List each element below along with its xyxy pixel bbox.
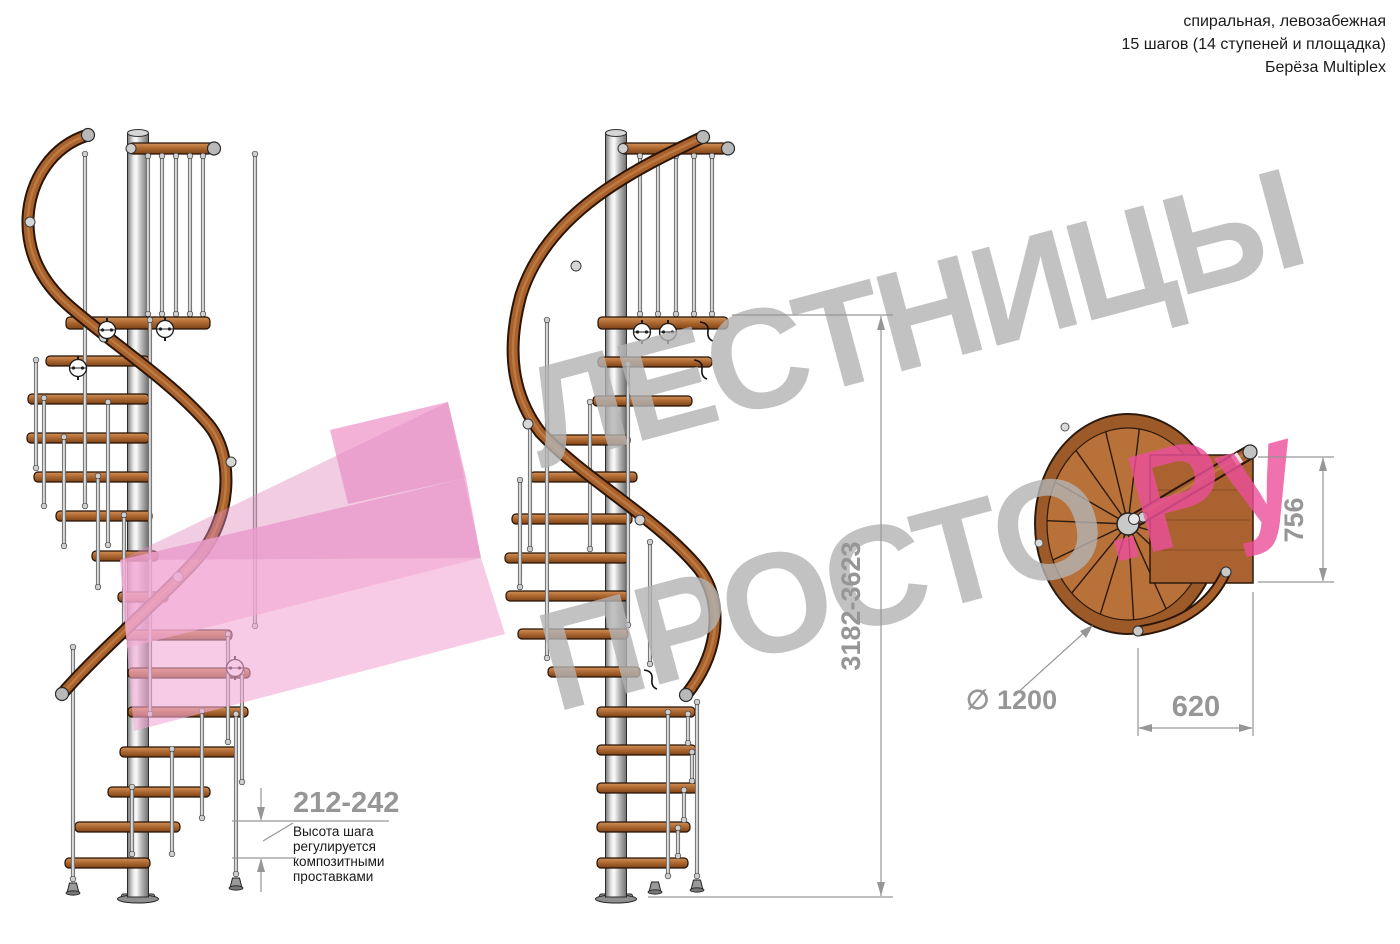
dim-step-height: 212-242 Высота шага регулируется компози…: [232, 787, 399, 892]
baluster: [518, 478, 522, 589]
fitting-dot: [72, 366, 75, 369]
landing-rail-joint: [126, 144, 136, 154]
dim-total-height-label: 3182-3623: [836, 541, 866, 670]
title-line-steps: 15 шагов (14 ступеней и площадка): [1122, 33, 1387, 56]
baluster-knob: [145, 311, 151, 317]
baluster: [695, 700, 699, 878]
handrail-sleeve: [226, 457, 236, 467]
baluster-knob: [694, 873, 700, 879]
baluster-knob: [689, 749, 695, 755]
baluster-knob: [675, 825, 681, 831]
landing-rail-cap: [722, 142, 735, 155]
arc-cap: [1133, 626, 1143, 636]
baluster-knob: [681, 817, 687, 823]
watermark-text: ЛЕСТНИЦЫ ПРОСТО.Ру: [508, 138, 1318, 742]
handrail-sleeve: [571, 261, 581, 271]
baluster: [666, 710, 670, 878]
tread: [505, 553, 628, 563]
handrail-sleeve: [25, 217, 35, 227]
baluster-knob: [587, 546, 593, 552]
arrowhead: [1080, 625, 1093, 638]
baluster: [528, 420, 532, 551]
baluster-knob: [681, 787, 687, 793]
baluster-knob: [33, 357, 39, 363]
handrail-end-cap: [82, 129, 95, 142]
step-note-line: регулируется: [293, 839, 376, 854]
baluster-knob: [169, 851, 175, 857]
baluster-knob: [527, 546, 533, 552]
title-line-material: Берёза Multiplex: [1122, 56, 1387, 79]
drawing-canvas: ЛЕСТНИЦЫ ПРОСТО.Ру 3182-3623 212-242: [0, 0, 1400, 944]
logo-facet: [120, 402, 481, 560]
baluster-knob: [647, 539, 653, 545]
tread: [65, 858, 150, 868]
baluster-knob: [200, 153, 206, 159]
baluster: [234, 712, 238, 876]
foot-plate: [229, 886, 243, 890]
baluster-knob: [233, 711, 239, 717]
baluster-knob: [665, 873, 671, 879]
baluster-knob: [121, 512, 127, 518]
baluster-knob: [159, 153, 165, 159]
watermark-logo-mark: [120, 402, 505, 731]
handrail-end-cap: [697, 131, 710, 144]
baluster-knob: [105, 399, 111, 405]
arrowhead: [1319, 457, 1327, 471]
tread: [597, 858, 688, 868]
leader-line: [263, 823, 293, 841]
baluster-knob: [187, 311, 193, 317]
dim-diameter-label: ∅ 1200: [966, 685, 1057, 715]
title-line-type: спиральная, левозабежная: [1122, 10, 1387, 33]
tread: [34, 472, 150, 482]
baluster: [674, 154, 678, 316]
baluster: [201, 154, 205, 316]
baluster-knob: [239, 779, 245, 785]
baluster-knob: [173, 153, 179, 159]
foot-plate: [690, 888, 704, 892]
tread: [120, 747, 237, 757]
baluster: [174, 154, 178, 316]
baluster-knob: [41, 503, 47, 509]
baluster: [130, 785, 134, 856]
title-block: спиральная, левозабежная 15 шагов (14 ст…: [1122, 10, 1387, 79]
baluster-knob: [233, 871, 239, 877]
baluster-knob: [82, 503, 88, 509]
plan-baluster-top: [1061, 423, 1069, 431]
arrowhead: [1319, 568, 1327, 582]
baluster-knob: [129, 851, 135, 857]
baluster-knob: [145, 153, 151, 159]
baluster-knob: [61, 543, 67, 549]
baluster-knob: [95, 473, 101, 479]
baluster-knob: [70, 644, 76, 650]
baluster-knob: [147, 317, 153, 323]
baluster-knob: [129, 784, 135, 790]
tread: [75, 822, 180, 832]
baluster-knob: [173, 311, 179, 317]
fitting-dot: [101, 328, 104, 331]
baluster-knob: [685, 740, 691, 746]
baluster-knob: [517, 477, 523, 483]
baluster-knob: [70, 876, 76, 882]
baluster: [170, 747, 174, 856]
baluster-knob: [169, 746, 175, 752]
handrail-sleeve: [635, 515, 645, 525]
baluster: [656, 154, 660, 316]
pole-top-cap: [606, 130, 627, 137]
baluster: [200, 709, 204, 820]
baluster-knob: [61, 434, 67, 440]
baluster: [83, 152, 87, 508]
dim-landing-width-label: 620: [1172, 691, 1220, 723]
baluster: [160, 154, 164, 316]
arrowhead: [1239, 724, 1253, 732]
middle-elevation-view: [505, 130, 735, 904]
foot-plate: [648, 890, 662, 894]
arrowhead: [257, 807, 265, 821]
baluster: [42, 396, 46, 508]
baluster-knob: [159, 311, 165, 317]
dim-landing-depth-label: 756: [1279, 497, 1309, 542]
baluster: [146, 154, 150, 316]
landing-rail: [128, 143, 214, 154]
landing-rail-joint: [618, 144, 628, 154]
baluster-knob: [689, 778, 695, 784]
baluster-knob: [95, 584, 101, 590]
step-note-line: проставками: [293, 869, 373, 884]
fitting-dot: [110, 328, 113, 331]
baluster-knob: [82, 151, 88, 157]
baluster-knob: [691, 153, 697, 159]
baluster-knob: [187, 153, 193, 159]
baluster-knob: [252, 151, 258, 157]
pole-top-cap: [128, 130, 149, 137]
landing-rail-cap: [208, 142, 221, 155]
baluster: [692, 154, 696, 316]
baluster-knob: [685, 711, 691, 717]
arrowhead: [257, 858, 265, 872]
baluster-knob: [225, 739, 231, 745]
baluster: [34, 358, 38, 470]
dim-diameter: ∅ 1200: [966, 625, 1093, 715]
baluster-knob: [709, 153, 715, 159]
baluster-knob: [544, 317, 550, 323]
arrowhead: [877, 882, 885, 896]
baluster-knob: [41, 395, 47, 401]
dim-step-height-label: 212-242: [293, 787, 399, 819]
step-note-line: композитными: [293, 854, 384, 869]
baluster: [62, 435, 66, 548]
tread: [108, 787, 210, 797]
step-note-line: Высота шага: [293, 824, 374, 839]
tread: [56, 511, 152, 521]
fitting-dot: [159, 327, 162, 330]
baluster: [188, 154, 192, 316]
fitting-dot: [81, 366, 84, 369]
baluster: [638, 154, 642, 316]
baluster: [96, 474, 100, 589]
fitting-dot: [168, 327, 171, 330]
tread: [597, 745, 696, 755]
baluster-knob: [200, 311, 206, 317]
baluster: [106, 400, 110, 547]
baluster-knob: [33, 465, 39, 471]
handrail-end-cap: [56, 688, 69, 701]
baluster-knob: [199, 815, 205, 821]
baluster-knob: [105, 542, 111, 548]
drawing-page: спиральная, левозабежная 15 шагов (14 ст…: [0, 0, 1400, 944]
arc-cap: [1221, 567, 1231, 577]
arrowhead: [1138, 724, 1152, 732]
baluster-knob: [637, 153, 643, 159]
foot-plate: [66, 891, 80, 895]
baluster-knob: [675, 853, 681, 859]
